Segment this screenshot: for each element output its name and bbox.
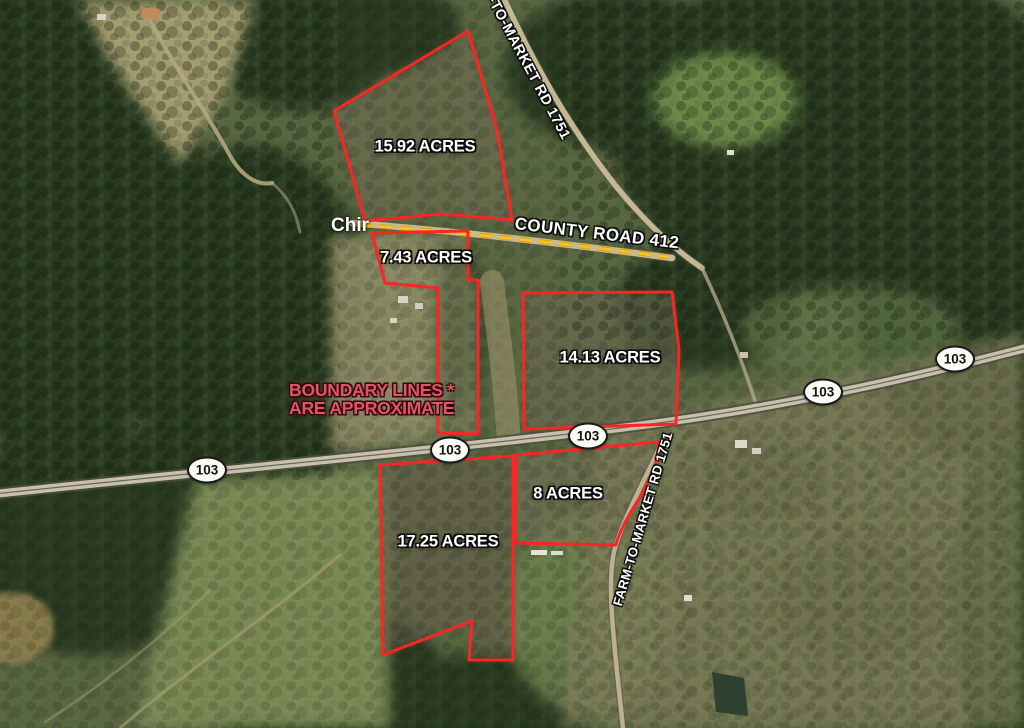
parcel-map: 15.92 ACRES 7.43 ACRES 14.13 ACRES 8 ACR…: [0, 0, 1024, 728]
satellite-basemap: [0, 0, 1024, 728]
highway-103-shield: 103: [568, 423, 608, 450]
building: [390, 318, 397, 323]
pond: [712, 672, 748, 716]
dirt-track: [492, 282, 508, 430]
building: [752, 448, 761, 454]
building: [551, 551, 563, 555]
building: [684, 595, 692, 601]
building: [727, 150, 734, 155]
building: [415, 303, 423, 309]
highway-103-shield: 103: [803, 379, 843, 406]
highway-103-shield: 103: [935, 346, 975, 373]
highway-103-shield: 103: [187, 457, 227, 484]
building: [398, 296, 408, 303]
building: [740, 352, 748, 358]
building: [735, 440, 747, 448]
building: [97, 14, 106, 20]
highway-103-shield: 103: [430, 437, 470, 464]
building: [531, 550, 547, 555]
